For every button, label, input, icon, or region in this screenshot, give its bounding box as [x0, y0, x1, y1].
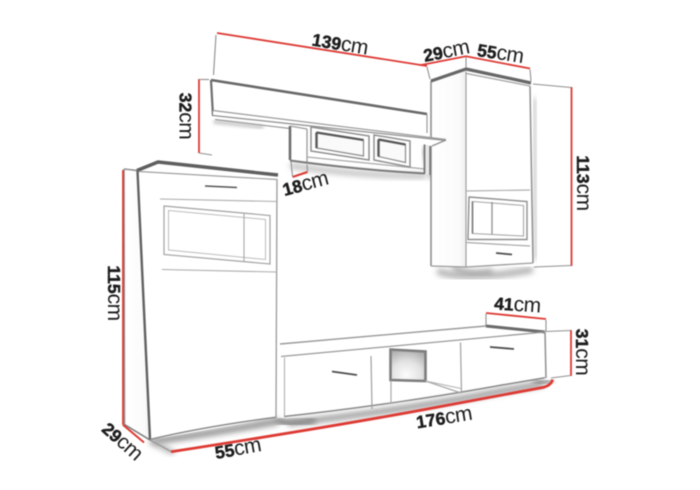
svg-text:41cm: 41cm [493, 291, 541, 317]
svg-text:32cm: 32cm [175, 93, 198, 139]
svg-text:115cm: 115cm [103, 265, 126, 320]
svg-text:31cm: 31cm [571, 329, 594, 375]
svg-text:113cm: 113cm [572, 155, 595, 210]
